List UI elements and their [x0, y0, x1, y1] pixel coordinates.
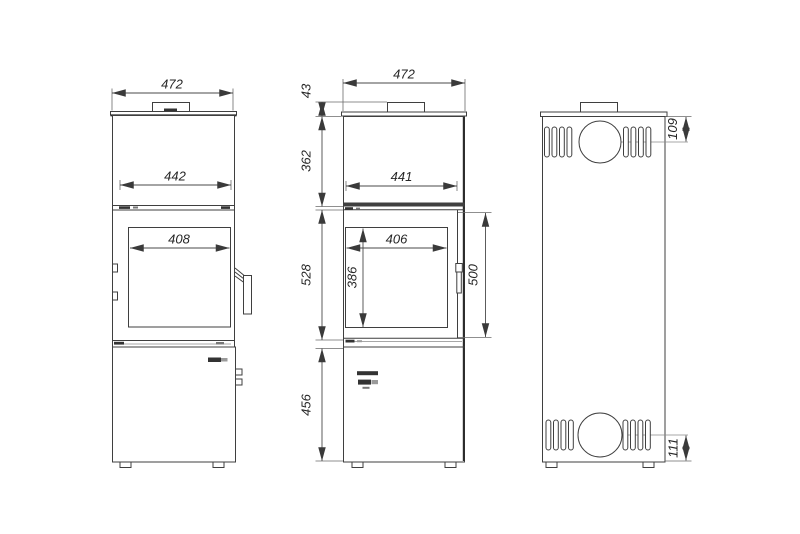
top-plate-front [342, 112, 467, 116]
door-top-band-front [344, 204, 465, 207]
drawing-canvas: 472 442 408 [0, 0, 800, 534]
dimension-front-firebox-height: 528 [299, 210, 344, 340]
door-latch [456, 264, 463, 294]
dim-label-side-408: 408 [168, 232, 190, 247]
foot [213, 462, 224, 468]
foot [352, 462, 363, 468]
hinge-bottom [113, 292, 118, 300]
front-view: 472 43 362 528 456 4 [299, 67, 492, 468]
foot [643, 462, 654, 468]
door-top-band-side [113, 206, 235, 211]
dimension-back-flue-top-offset: 109 [665, 117, 692, 142]
dim-label-front-441: 441 [391, 169, 413, 184]
foot [445, 462, 456, 468]
dim-label-front-386: 386 [345, 266, 360, 288]
side-tab-bottom [236, 379, 243, 385]
dim-label-side-442: 442 [164, 169, 186, 184]
brand-logo-mark [208, 358, 221, 363]
body-back [543, 117, 666, 463]
dim-label-back-109: 109 [665, 118, 680, 140]
dim-label-front-456: 456 [299, 393, 314, 415]
dim-label-side-472: 472 [161, 77, 183, 92]
dimension-back-flue-bottom-offset: 111 [665, 436, 692, 462]
side-view: 472 442 408 [111, 77, 252, 468]
flue-collar-front [388, 103, 425, 113]
dimension-front-upper-height: 362 [299, 117, 344, 207]
flue-circle-top [579, 121, 621, 163]
dim-label-front-472: 472 [393, 67, 415, 82]
side-tab-top [236, 369, 243, 375]
upper-body-side [113, 116, 235, 206]
collar-mark [164, 109, 177, 112]
back-view: 109 111 [541, 103, 692, 468]
flue-collar-back [581, 103, 618, 113]
foot [546, 462, 557, 468]
dim-label-front-528: 528 [299, 263, 314, 285]
dim-label-front-406: 406 [386, 232, 408, 247]
dim-label-front-43: 43 [299, 83, 314, 98]
flue-circle-bottom [578, 413, 622, 457]
dimension-front-base-height: 456 [299, 349, 344, 462]
dim-label-front-362: 362 [299, 149, 314, 171]
dim-label-front-500: 500 [466, 263, 481, 285]
top-plate-back [541, 112, 668, 117]
hinge-top [113, 264, 118, 272]
dim-label-back-111: 111 [666, 438, 681, 458]
foot [120, 462, 131, 468]
base-cabinet-side [113, 347, 236, 462]
technical-drawing: 472 442 408 [0, 0, 800, 534]
door-handle [235, 268, 252, 314]
